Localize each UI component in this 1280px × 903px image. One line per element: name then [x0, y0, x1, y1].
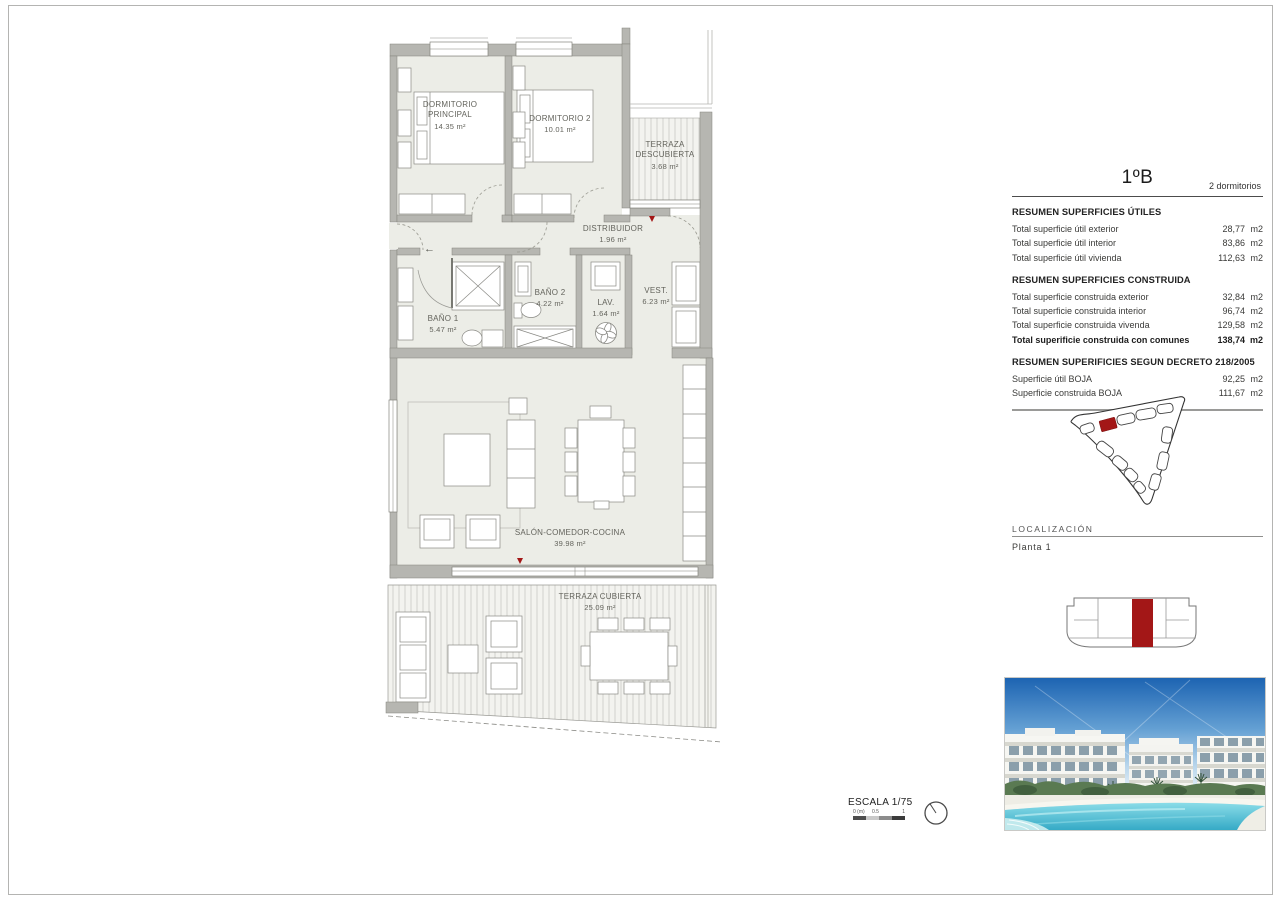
summary-row: Total superificie construida con comunes…: [1012, 333, 1263, 347]
north-indicator-icon: [923, 800, 949, 826]
section-heading: RESUMEN SUPERFICIES ÚTILES: [1012, 207, 1263, 217]
title-divider: [1012, 196, 1263, 197]
entry-arrow-icon: ←: [424, 243, 435, 255]
highlighted-unit-column: [1132, 599, 1153, 647]
localizacion-heading: LOCALIZACIÓN: [1012, 524, 1263, 534]
unit-type: 2 dormitorios: [1209, 181, 1261, 191]
room-label-dormitorio-principal: DORMITORIO PRINCIPAL 14.35 m²: [402, 100, 498, 132]
summary-row: Total superficie construida interior96,7…: [1012, 304, 1263, 318]
room-label-distribuidor: DISTRIBUIDOR 1.96 m²: [568, 224, 658, 245]
building-photo: [1005, 678, 1265, 830]
floor-label: Planta 1: [1012, 542, 1051, 552]
scale-bar: [853, 816, 905, 820]
unit-title-row: 1ºB 2 dormitorios: [1012, 163, 1263, 193]
room-label-bano-1: BAÑO 1 5.47 m²: [406, 314, 480, 335]
summary-row: Total superficie útil vivienda112,63m2: [1012, 251, 1263, 265]
section-heading: RESUMEN SUPERFICIES CONSTRUIDA: [1012, 275, 1263, 285]
site-plan-diagram: [1055, 395, 1205, 515]
summary-row: Total superficie útil exterior28,77m2: [1012, 222, 1263, 236]
summary-row: Total superficie útil interior83,86m2: [1012, 236, 1263, 250]
plan-sheet: DORMITORIO PRINCIPAL 14.35 m² DORMITORIO…: [0, 0, 1280, 903]
room-label-lavadero: LAV. 1.64 m²: [584, 298, 628, 319]
scale-ticks: 0 (m) 0.5 1: [853, 809, 905, 815]
summary-sections: RESUMEN SUPERFICIES ÚTILESTotal superfic…: [1012, 207, 1263, 401]
room-label-terraza-descubierta: TERRAZA DESCUBIERTA 3.68 m²: [627, 140, 703, 172]
summary-row: Total superficie construida exterior32,8…: [1012, 290, 1263, 304]
room-label-bano-2: BAÑO 2 4.22 m²: [517, 288, 583, 309]
room-label-terraza-cubierta: TERRAZA CUBIERTA 25.09 m²: [535, 592, 665, 613]
building-elevation-diagram: [1062, 590, 1202, 656]
localizacion-divider: [1012, 536, 1263, 537]
room-label-dormitorio-2: DORMITORIO 2 10.01 m²: [512, 114, 608, 135]
room-label-salon: SALÓN-COMEDOR-COCINA 39.98 m²: [495, 528, 645, 549]
summary-row: Total superficie construida vivenda129,5…: [1012, 318, 1263, 332]
surface-summary-panel: 1ºB 2 dormitorios RESUMEN SUPERFICIES ÚT…: [1012, 163, 1263, 411]
room-label-vestidor: VEST. 6.23 m²: [630, 286, 682, 307]
scale-label: ESCALA 1/75: [848, 797, 912, 808]
extractor-fan-icon: [595, 322, 617, 344]
section-heading: RESUMEN SUPERIFICIES SEGUN DECRETO 218/2…: [1012, 357, 1263, 367]
summary-row: Superficie útil BOJA92,25m2: [1012, 372, 1263, 386]
entry-opening: [389, 223, 398, 249]
